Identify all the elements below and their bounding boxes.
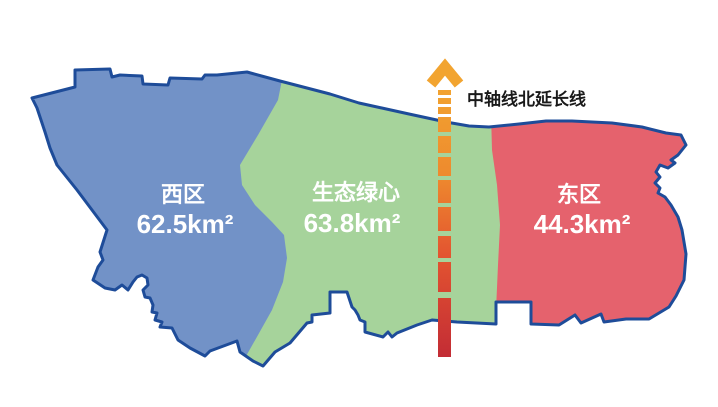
- west-region-name: 西区: [161, 182, 205, 207]
- central-axis-line: [438, 90, 451, 357]
- green-heart-region-name: 生态绿心: [312, 180, 400, 205]
- axis-dash: [438, 262, 451, 292]
- axis-dash: [438, 107, 451, 114]
- north-arrow-icon: [431, 67, 459, 84]
- axis-dash: [438, 180, 451, 203]
- axis-dash: [438, 136, 451, 153]
- axis-dash: [438, 117, 451, 132]
- axis-dash: [438, 90, 451, 95]
- axis-dash: [438, 236, 451, 258]
- district-map-svg: 中轴线北延长线 西区 62.5km² 生态绿心 63.8km² 东区 44.3k…: [0, 0, 718, 407]
- east-region-area: 44.3km²: [534, 209, 631, 239]
- axis-dash: [438, 157, 451, 176]
- axis-dash: [438, 207, 451, 231]
- axis-dash: [438, 298, 451, 357]
- district-map-figure: 中轴线北延长线 西区 62.5km² 生态绿心 63.8km² 东区 44.3k…: [0, 0, 718, 407]
- green-heart-region-area: 63.8km²: [304, 208, 401, 238]
- west-region-area: 62.5km²: [137, 209, 234, 239]
- axis-dash: [438, 98, 451, 104]
- central-axis-label: 中轴线北延长线: [467, 89, 586, 109]
- east-region-name: 东区: [557, 182, 601, 207]
